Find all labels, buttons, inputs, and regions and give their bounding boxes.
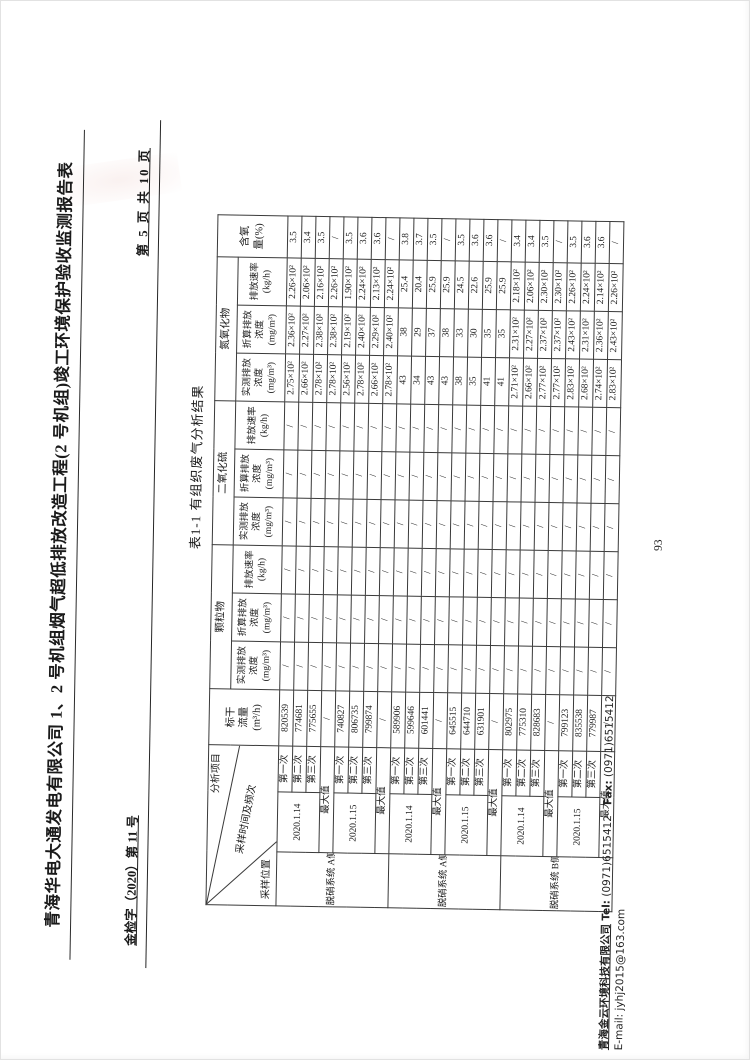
table-cell: /	[563, 455, 578, 503]
table-cell: /	[337, 595, 352, 643]
table-cell: /	[507, 454, 522, 502]
table-cell: /	[367, 451, 382, 499]
footer-fax-label: Fax:	[602, 780, 614, 805]
table-cell: /	[550, 407, 565, 455]
table-cell: 第二次	[404, 748, 419, 794]
table-cell: /	[532, 598, 547, 646]
table-cell: /	[420, 644, 435, 692]
table-cell: 2.56×10²	[341, 355, 356, 403]
table-cell: /	[497, 220, 512, 262]
table-cell: /	[522, 406, 537, 454]
table-cell: 2.18×10²	[510, 262, 525, 310]
table-cell: 第二次	[348, 747, 363, 793]
table-cell: /	[396, 404, 411, 452]
table-cell: /	[505, 550, 520, 598]
table-cell: 3.6	[595, 221, 610, 263]
table-cell: /	[435, 597, 450, 645]
table-cell: /	[588, 647, 603, 695]
table-cell: 35	[482, 309, 497, 357]
date-cell: 2020.1.14	[277, 792, 320, 853]
table-cell: /	[463, 549, 478, 597]
table-cell: /	[493, 454, 508, 502]
table-cell: 25.9	[482, 261, 497, 309]
table-cell: 2.77×10²	[551, 359, 566, 407]
table-cell: 2.06×10²	[300, 258, 315, 306]
table-cell: /	[325, 451, 340, 499]
table-cell: /	[448, 645, 463, 693]
corner-label-sampling-location: 采样位置	[260, 859, 273, 899]
page-number: 93	[653, 539, 665, 551]
table-cell: /	[339, 451, 354, 499]
table-cell: 2.78×10²	[327, 355, 342, 403]
table-cell: 第一次	[278, 746, 293, 792]
table-cell: 3.4	[525, 220, 540, 262]
table-cell: 43	[439, 357, 454, 405]
table-cell: /	[546, 599, 561, 647]
table-cell: 828683	[531, 694, 546, 750]
table-cell: /	[350, 643, 365, 691]
table-cell: 41	[481, 357, 496, 405]
table-cell: 38	[440, 309, 455, 357]
table-cell: /	[534, 502, 549, 550]
table-cell: 774681	[293, 690, 308, 746]
table-cell: /	[533, 550, 548, 598]
table-cell: /	[477, 597, 492, 645]
table-cell: 1.90×10²	[342, 259, 357, 307]
table-cell: /	[395, 452, 410, 500]
table-cell: /	[365, 547, 380, 595]
rotated-landscape-content: 青海华电大通发电有限公司 1、2 号机组烟气超低排放改造工程(2 号机组)竣工环…	[0, 0, 750, 1060]
table-cell: 2.30×10²	[552, 263, 567, 311]
table-cell: 799874	[363, 691, 378, 747]
table-cell: /	[450, 501, 465, 549]
table-cell: 第三次	[306, 746, 321, 792]
header-pm-converted: 折算排放 浓度 (mg/m³)	[232, 593, 282, 642]
table-cell: /	[521, 454, 536, 502]
table-cell: 740827	[335, 691, 350, 747]
date-cell: 2020.1.14	[501, 796, 544, 857]
table-cell: /	[297, 450, 312, 498]
table-cell: 第二次	[572, 751, 587, 797]
table-cell: /	[311, 450, 326, 498]
table-cell: 33	[454, 309, 469, 357]
table-cell: /	[578, 407, 593, 455]
table-cell: /	[479, 453, 494, 501]
table-cell: /	[393, 548, 408, 596]
table-cell: 38	[398, 308, 413, 356]
table-cell: 644710	[461, 693, 476, 749]
table-cell: /	[588, 599, 603, 647]
table-cell: /	[410, 404, 425, 452]
table-cell: /	[408, 500, 423, 548]
table-cell: 599646	[405, 692, 420, 748]
table-cell: 第三次	[362, 747, 377, 793]
table-cell: /	[451, 453, 466, 501]
table-cell: /	[491, 598, 506, 646]
table-cell: 第一次	[558, 751, 573, 797]
table-cell: /	[351, 595, 366, 643]
date-cell: 2020.1.15	[333, 793, 376, 854]
page-info: 第 5 页 共 10 页	[132, 148, 153, 257]
table-cell: 3.6	[371, 217, 386, 259]
table-cell: 2.78×10²	[313, 354, 328, 402]
table-cell: /	[574, 599, 589, 647]
table-cell: 775655	[307, 690, 322, 746]
table-cell: 第三次	[474, 749, 489, 795]
date-cell: 2020.1.15	[557, 797, 600, 858]
table-cell: 2.38×10²	[328, 307, 343, 355]
table-cell: 2.37×10²	[552, 311, 567, 359]
table-cell: /	[562, 503, 577, 551]
table-cell: /	[546, 647, 561, 695]
footer-tel-label: Tel:	[600, 900, 612, 921]
table-cell: /	[284, 402, 299, 450]
table-cell: /	[462, 645, 477, 693]
table-cell: /	[324, 499, 339, 547]
table-cell: 2.24×10²	[356, 259, 371, 307]
table-cell: /	[377, 692, 392, 748]
table-cell: 3.5	[567, 221, 582, 263]
table-cell: 2.30×10²	[538, 262, 553, 310]
table-cell: /	[602, 647, 617, 695]
table-cell: /	[547, 551, 562, 599]
table-cell: /	[545, 695, 560, 751]
header-nox-rate: 排放速率 (kg/h)	[237, 257, 287, 306]
footer-tel-number: (0971)6515412	[601, 815, 614, 897]
table-cell: 43	[425, 356, 440, 404]
analysis-results-table: 分析项目 采样时间及频次 采样位置 标干 流量 (m³/h) 颗粒物 二氧化硫 …	[205, 214, 624, 912]
table-cell: 2.83×10²	[607, 360, 622, 408]
table-cell: /	[392, 644, 407, 692]
table-cell: 2.31×10²	[580, 311, 595, 359]
table-cell: /	[351, 547, 366, 595]
table-cell: /	[378, 644, 393, 692]
header-nox-converted: 折算排放 浓度 (mg/m³)	[237, 305, 287, 354]
table-cell: /	[354, 403, 369, 451]
table-cell: 3.5	[539, 220, 554, 262]
table-cell: 3.5	[455, 219, 470, 261]
table-cell: /	[380, 500, 395, 548]
table-cell: 3.6	[581, 221, 596, 263]
header-group-so2: 二氧化硫	[212, 401, 236, 545]
table-cell: 645515	[447, 693, 462, 749]
table-cell: 2.06×10²	[524, 262, 539, 310]
table-cell: 3.5	[315, 216, 330, 258]
table-cell: 38	[453, 357, 468, 405]
table-cell: /	[438, 405, 453, 453]
table-cell: 第一次	[502, 750, 517, 796]
footer-email-address: jyhj2015@163.com	[614, 909, 628, 1011]
table-cell: 2.78×10²	[383, 356, 398, 404]
header-flow-rate: 标干 流量 (m³/h)	[209, 689, 280, 746]
report-title: 青海华电大通发电有限公司 1、2 号机组烟气超低排放改造工程(2 号机组)竣工环…	[38, 129, 84, 959]
table-cell: 第一次	[334, 747, 349, 793]
table-cell: /	[591, 455, 606, 503]
table-cell: /	[603, 552, 618, 600]
table-cell: /	[508, 406, 523, 454]
table-cell: /	[477, 549, 492, 597]
analysis-table-body: 脱硝系统 A侧进口2020.1.14第一次820539//////2.75×10…	[276, 216, 624, 912]
table-cell: 30	[468, 309, 483, 357]
table-cell: /	[491, 550, 506, 598]
table-cell: /	[280, 642, 295, 690]
table-cell: 3.4	[301, 216, 316, 258]
table-cell: 3.6	[357, 217, 372, 259]
table-cell: /	[379, 596, 394, 644]
table-cell: /	[323, 547, 338, 595]
table-cell: /	[340, 403, 355, 451]
location-cell: 脱硝系统 B侧进口	[500, 856, 613, 912]
table-cell: 3.8	[399, 218, 414, 260]
table-cell: 835538	[573, 695, 588, 751]
table-cell: /	[393, 596, 408, 644]
table-cell: /	[465, 453, 480, 501]
document-footer: 青海金云环境科技有限公司 Tel: (0971)6515412 Fax: (09…	[597, 695, 633, 1050]
table-cell: /	[308, 642, 323, 690]
table-cell: /	[589, 551, 604, 599]
table-cell: /	[577, 455, 592, 503]
table-cell: /	[326, 403, 341, 451]
table-cell: 2.68×10²	[579, 359, 594, 407]
table-cell: /	[433, 693, 448, 749]
table-cell: 第二次	[292, 746, 307, 792]
header-pm-rate: 排放速率 (kg/h)	[232, 545, 282, 594]
table-cell: 2.66×10²	[369, 355, 384, 403]
table-cell: /	[309, 546, 324, 594]
table-cell: /	[604, 504, 619, 552]
table-cell: /	[449, 549, 464, 597]
footer-fax-number: (0971)6515412	[603, 695, 616, 777]
table-cell: 2.26×10²	[608, 264, 623, 312]
table-cell: 2.40×10²	[356, 307, 371, 355]
table-cell: /	[309, 594, 324, 642]
table-cell: /	[321, 691, 336, 747]
table-cell: /	[575, 551, 590, 599]
table-cell: 25.9	[426, 260, 441, 308]
table-cell: /	[323, 595, 338, 643]
table-cell: /	[492, 502, 507, 550]
table-cell: /	[409, 452, 424, 500]
table-cell: /	[605, 456, 620, 504]
table-cell: /	[564, 407, 579, 455]
table-cell: /	[561, 551, 576, 599]
table-cell: 2.77×10²	[537, 358, 552, 406]
header-group-nox: 氮氧化物	[215, 257, 239, 401]
table-cell: 3.4	[511, 220, 526, 262]
table-cell: /	[353, 451, 368, 499]
table-cell: /	[435, 549, 450, 597]
table-cell: 2.24×10²	[580, 263, 595, 311]
table-cell: /	[434, 645, 449, 693]
table-cell: 775310	[517, 694, 532, 750]
table-cell: /	[406, 644, 421, 692]
table-cell: 2.26×10²	[566, 263, 581, 311]
table-cell: 2.38×10²	[314, 306, 329, 354]
table-cell: /	[606, 408, 621, 456]
table-cell: /	[365, 595, 380, 643]
table-cell: /	[381, 452, 396, 500]
table-cell: /	[609, 222, 624, 264]
table-cell: 2.26×10²	[286, 258, 301, 306]
table-cell: /	[574, 647, 589, 695]
header-oxygen-content: 含氧 量(%)	[217, 215, 288, 258]
table-cell: 779987	[587, 695, 602, 751]
table-cell: /	[385, 218, 400, 260]
table-cell: 2.75×10²	[285, 354, 300, 402]
document-number: 金检字（2020）第 11 号	[120, 815, 141, 946]
table-cell: 2.31×10²	[510, 310, 525, 358]
document-sheet: 青海华电大通发电有限公司 1、2 号机组烟气超低排放改造工程(2 号机组)竣工环…	[0, 0, 750, 1060]
table-cell: 2.36×10²	[286, 306, 301, 354]
table-cell: 2.26×10²	[328, 259, 343, 307]
table-cell: 35	[467, 357, 482, 405]
corner-header-cell: 分析项目 采样时间及频次 采样位置	[206, 745, 279, 906]
table-cell: 2.29×10²	[370, 307, 385, 355]
table-cell: /	[489, 694, 504, 750]
header-so2-converted: 折算排放 浓度 (mg/m³)	[234, 449, 284, 498]
table-cell: /	[452, 405, 467, 453]
table-cell: /	[449, 597, 464, 645]
table-cell: /	[560, 599, 575, 647]
header-group-particulate: 颗粒物	[210, 545, 234, 689]
table-cell: /	[590, 503, 605, 551]
table-cell: 589906	[391, 692, 406, 748]
footer-company-name: 青海金云环境科技有限公司	[598, 924, 612, 1050]
header-meta-row: 金检字（2020）第 11 号 第 5 页 共 10 页	[119, 124, 154, 966]
table-cell: /	[602, 599, 617, 647]
table-cell: /	[296, 498, 311, 546]
table-cell: /	[352, 499, 367, 547]
table-cell: /	[329, 217, 344, 259]
table-cell: /	[294, 642, 309, 690]
table-cell: /	[536, 406, 551, 454]
table-cell: 20.4	[412, 260, 427, 308]
table-cell: /	[478, 501, 493, 549]
table-cell: /	[364, 643, 379, 691]
table-cell: /	[421, 596, 436, 644]
table-cell: 2.74×10²	[593, 359, 608, 407]
table-cell: /	[322, 643, 337, 691]
table-cell: 43	[397, 356, 412, 404]
table-cell: 631901	[475, 693, 490, 749]
table-cell: 3.6	[483, 219, 498, 261]
table-cell: /	[504, 646, 519, 694]
table-cell: 2.27×10²	[300, 306, 315, 354]
date-cell: 2020.1.15	[445, 795, 488, 856]
header-nox-measured: 实测排放 浓度 (mg/m³)	[236, 353, 286, 402]
table-cell: 2.78×10²	[355, 355, 370, 403]
table-cell: /	[518, 598, 533, 646]
table-cell: /	[436, 501, 451, 549]
table-cell: /	[382, 404, 397, 452]
table-cell: /	[463, 597, 478, 645]
table-cell: /	[281, 594, 296, 642]
table-cell: 24.5	[454, 261, 469, 309]
table-cell: /	[548, 503, 563, 551]
table-cell: 41	[495, 358, 510, 406]
table-cell: /	[520, 502, 535, 550]
table-cell: 2.16×10²	[314, 258, 329, 306]
table-cell: 第二次	[460, 749, 475, 795]
table-cell: /	[553, 221, 568, 263]
table-cell: 2.14×10²	[594, 263, 609, 311]
table-cell: /	[407, 548, 422, 596]
table-cell: /	[281, 546, 296, 594]
footer-email-label: E-mail:	[613, 1014, 626, 1051]
table-cell: 2.83×10²	[565, 359, 580, 407]
header-so2-rate: 排放速率 (kg/h)	[235, 401, 285, 450]
table-cell: /	[535, 454, 550, 502]
table-cell: 2.66×10²	[523, 358, 538, 406]
table-cell: 802975	[503, 694, 518, 750]
table-cell: /	[368, 403, 383, 451]
table-cell: 22.6	[468, 261, 483, 309]
table-cell: /	[506, 502, 521, 550]
table-cell: /	[295, 594, 310, 642]
table-cell: /	[592, 407, 607, 455]
table-cell: 25.9	[496, 262, 511, 310]
table-cell: /	[283, 450, 298, 498]
table-cell: 2.71×10²	[509, 358, 524, 406]
table-cell: 3.5	[427, 218, 442, 260]
table-cell: 第三次	[530, 750, 545, 796]
table-cell: 第二次	[516, 750, 531, 796]
table-cell: 2.40×10²	[384, 308, 399, 356]
header-so2-measured: 实测排放 浓度 (mg/m³)	[233, 497, 283, 546]
table-cell: 2.27×10²	[524, 310, 539, 358]
corner-label-analysis-item: 分析项目	[210, 753, 223, 793]
table-cell: 34	[411, 356, 426, 404]
table-cell: /	[423, 452, 438, 500]
scanned-document-page: 青海华电大通发电有限公司 1、2 号机组烟气超低排放改造工程(2 号机组)竣工环…	[0, 0, 750, 1060]
table-cell: 37	[426, 308, 441, 356]
table-cell: 2.36×10²	[594, 311, 609, 359]
table-cell: /	[519, 550, 534, 598]
table-cell: 601441	[419, 692, 434, 748]
table-cell: /	[407, 596, 422, 644]
table-cell: /	[464, 501, 479, 549]
table-cell: 3.7	[413, 218, 428, 260]
table-cell: /	[295, 546, 310, 594]
table-cell: 820539	[279, 690, 294, 746]
table-cell: /	[518, 646, 533, 694]
table-cell: 35	[496, 310, 511, 358]
table-cell: /	[394, 500, 409, 548]
table-cell: /	[366, 499, 381, 547]
table-cell: /	[379, 548, 394, 596]
table-cell: /	[422, 500, 437, 548]
table-cell: /	[312, 402, 327, 450]
table-cell: /	[424, 404, 439, 452]
table-cell: /	[549, 455, 564, 503]
header-pm-measured: 实测排放 浓度 (mg/m³)	[231, 641, 281, 690]
table-cell: 第三次	[418, 748, 433, 794]
table-cell: /	[476, 645, 491, 693]
table-cell: 2.19×10²	[342, 307, 357, 355]
table-cell: /	[282, 498, 297, 546]
table-cell: /	[560, 647, 575, 695]
table-cell: /	[466, 405, 481, 453]
table-cell: 799123	[559, 695, 574, 751]
table-cell: 25.9	[440, 261, 455, 309]
table-cell: /	[437, 453, 452, 501]
table-cell: 2.66×10²	[299, 354, 314, 402]
table-cell: 第一次	[390, 748, 405, 794]
table-cell: /	[421, 548, 436, 596]
table-cell: /	[310, 498, 325, 546]
table-cell: 3.6	[469, 219, 484, 261]
table-cell: /	[441, 219, 456, 261]
